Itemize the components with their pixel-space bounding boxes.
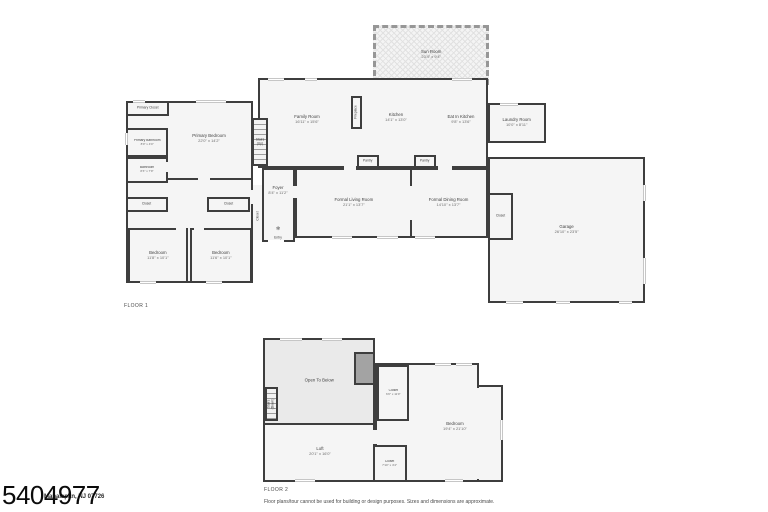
room-name: Primary Closet — [137, 106, 159, 110]
door-opening — [292, 186, 299, 198]
door-opening — [176, 226, 186, 231]
room-formal-living: Formal Living Room 21'1" x 13'7" — [295, 168, 412, 238]
label-small-closet: Closet — [256, 211, 260, 220]
room-name: Pantry — [363, 159, 373, 163]
window-mark — [452, 78, 472, 81]
room-name: Pantry — [420, 159, 430, 163]
garage-door-mark — [556, 301, 570, 304]
window-mark — [445, 479, 463, 482]
wall-merge-patch — [475, 388, 481, 479]
room-primary-bathroom: Primary Bathroom 8'0" x 4'0" — [126, 128, 168, 157]
window-mark — [295, 479, 315, 482]
window-mark — [456, 363, 472, 366]
window-mark — [305, 78, 317, 81]
room-name: Bedroom — [212, 250, 230, 256]
floor2-label: FLOOR 2 — [264, 487, 288, 493]
label-kitchen: Kitchen 14'1" x 13'0" — [385, 112, 407, 123]
room-label: Closet — [496, 214, 505, 218]
window-mark — [643, 185, 646, 201]
window-mark — [415, 236, 435, 239]
room-label: Formal Living Room 21'1" x 13'7" — [334, 197, 373, 208]
room-dims: 11'8" x 10'1" — [147, 256, 168, 261]
room-dims: (Down) — [271, 399, 275, 410]
room-label: Laundry Room 10'0" x 8'11" — [503, 117, 531, 128]
garage-door-mark — [506, 301, 523, 304]
room-formal-dining: Formal Dining Room 14'10" x 13'7" — [410, 168, 488, 238]
room-label: Closet — [224, 202, 233, 206]
room-dims: 11'6" x 10'1" — [210, 256, 231, 261]
room-name: Fireplace — [354, 105, 358, 119]
room-label: Primary Closet — [137, 106, 159, 110]
room-dims: 10'0" x 8'11" — [506, 123, 527, 128]
room-dims: 9'8" x 13'6" — [451, 120, 471, 125]
door-opening — [250, 190, 256, 204]
door-opening — [438, 165, 452, 171]
room-garage-closet: Closet — [488, 193, 513, 240]
door-opening — [371, 430, 378, 444]
entry-opening — [268, 240, 284, 244]
room-bedroom-left: Bedroom 11'8" x 10'1" — [128, 228, 188, 283]
room-label: Open To Below — [304, 379, 333, 385]
room-dims: (Up) — [257, 142, 263, 146]
window-mark — [125, 133, 128, 145]
label-entry: Entry — [274, 236, 282, 240]
room-label: Bathroom 8'3" x 7'9" — [140, 166, 154, 175]
door-opening — [194, 226, 204, 231]
room-floor2-closet-lower: Closet 7'10" x 4'4" — [373, 445, 407, 482]
room-dims: 8'3" x 7'9" — [140, 170, 153, 174]
label-stairs-up: Stairs (Up) — [256, 138, 264, 147]
label-eat-in-kitchen: Eat In Kitchen 9'8" x 13'6" — [448, 114, 475, 125]
room-dims: 26'10" x 23'5" — [555, 230, 579, 235]
room-name: Bedroom — [149, 250, 167, 256]
room-name: Closet — [224, 202, 233, 206]
room-label: Pantry — [363, 159, 373, 163]
label-loft: Loft 20'1" x 16'0" — [309, 446, 331, 457]
label-fireplace: Fireplace — [354, 105, 358, 119]
label-family-room: Family Room 16'11" x 15'6" — [294, 114, 319, 125]
window-mark — [280, 338, 302, 341]
room-dims: 19'4" x 21'10" — [443, 427, 467, 432]
floor-plan-canvas: Sun Room 23'4" x 9'4" Formal Living Room… — [0, 0, 768, 512]
room-dims: 20'1" x 16'0" — [309, 452, 331, 457]
room-label: Bedroom 11'8" x 10'1" — [147, 250, 168, 261]
room-laundry: Laundry Room 10'0" x 8'11" — [488, 103, 546, 143]
room-label: Closet 6'0" x 11'0" — [386, 389, 401, 398]
room-pantry-a: Pantry — [357, 155, 379, 168]
room-dims: 6'0" x 11'0" — [386, 393, 401, 397]
window-mark — [140, 281, 156, 284]
window-mark — [206, 281, 222, 284]
room-label: Garage 26'10" x 23'5" — [555, 224, 579, 235]
label-stairs-down: Stairs (Down) — [267, 399, 276, 410]
room-dims: 8'0" x 4'0" — [140, 143, 153, 147]
room-hall-closet: Closet — [126, 197, 168, 212]
window-mark — [133, 100, 145, 103]
room-label: Formal Dining Room 14'10" x 13'7" — [429, 197, 469, 208]
window-mark — [322, 338, 342, 341]
door-opening — [409, 186, 414, 220]
room-primary-closet: Primary Closet — [126, 101, 169, 116]
window-mark — [332, 236, 352, 239]
room-mid-closet: Closet — [207, 197, 250, 212]
room-dims: 8'4" x 11'2" — [268, 191, 287, 196]
room-sun-room: Sun Room 23'4" x 9'4" — [373, 25, 489, 85]
room-bedroom-right: Bedroom 11'6" x 10'1" — [190, 228, 252, 283]
room-dims: 22'0" x 14'2" — [198, 139, 220, 144]
room-label: Primary Bathroom 8'0" x 4'0" — [134, 138, 161, 147]
room-label: Sun Room 23'4" x 9'4" — [421, 49, 441, 60]
room-dims: 16'11" x 15'6" — [295, 120, 319, 125]
window-mark — [643, 258, 646, 284]
room-name: Open To Below — [304, 379, 333, 385]
window-mark — [435, 363, 451, 366]
wall-segment — [168, 178, 198, 180]
room-label: Closet — [142, 202, 151, 206]
room-pantry-b: Pantry — [414, 155, 436, 168]
window-mark — [377, 236, 398, 239]
room-label: Bedroom 11'6" x 10'1" — [210, 250, 231, 261]
window-mark — [196, 100, 226, 103]
room-dims: 7'10" x 4'4" — [383, 464, 398, 468]
label-primary-bedroom: Primary Bedroom 22'0" x 14'2" — [192, 133, 226, 144]
window-mark — [500, 103, 518, 106]
room-bathroom: Bathroom 8'3" x 7'9" — [126, 157, 168, 183]
chimney-block — [354, 352, 375, 385]
wall-segment — [210, 178, 253, 180]
label-floor2-bedroom: Bedroom 19'4" x 21'10" — [443, 421, 467, 432]
room-label: Pantry — [420, 159, 430, 163]
room-name: Entry — [274, 236, 282, 240]
label-foyer: Foyer 8'4" x 11'2" — [268, 185, 287, 196]
door-opening — [166, 162, 171, 172]
floor1-label: FLOOR 1 — [124, 303, 148, 309]
room-name: Closet — [256, 211, 260, 220]
room-dims: 14'10" x 13'7" — [437, 203, 461, 208]
room-dims: 21'1" x 13'7" — [343, 203, 365, 208]
door-opening — [344, 165, 356, 171]
room-dims: 23'4" x 9'4" — [421, 55, 441, 60]
room-name: Closet — [142, 202, 151, 206]
watermark-number: 5404977 — [2, 480, 100, 511]
room-floor2-closet-upper: Closet 6'0" x 11'0" — [377, 365, 409, 421]
window-mark — [500, 420, 503, 440]
garage-door-mark — [619, 301, 632, 304]
room-dims: 14'1" x 13'0" — [385, 118, 407, 123]
entry-light-icon: ✻ — [276, 226, 280, 232]
room-name: Closet — [496, 214, 505, 218]
window-mark — [268, 78, 284, 81]
room-label: Closet 7'10" x 4'4" — [383, 459, 398, 468]
disclaimer-text: Floor plans/tour cannot be used for buil… — [264, 499, 494, 505]
